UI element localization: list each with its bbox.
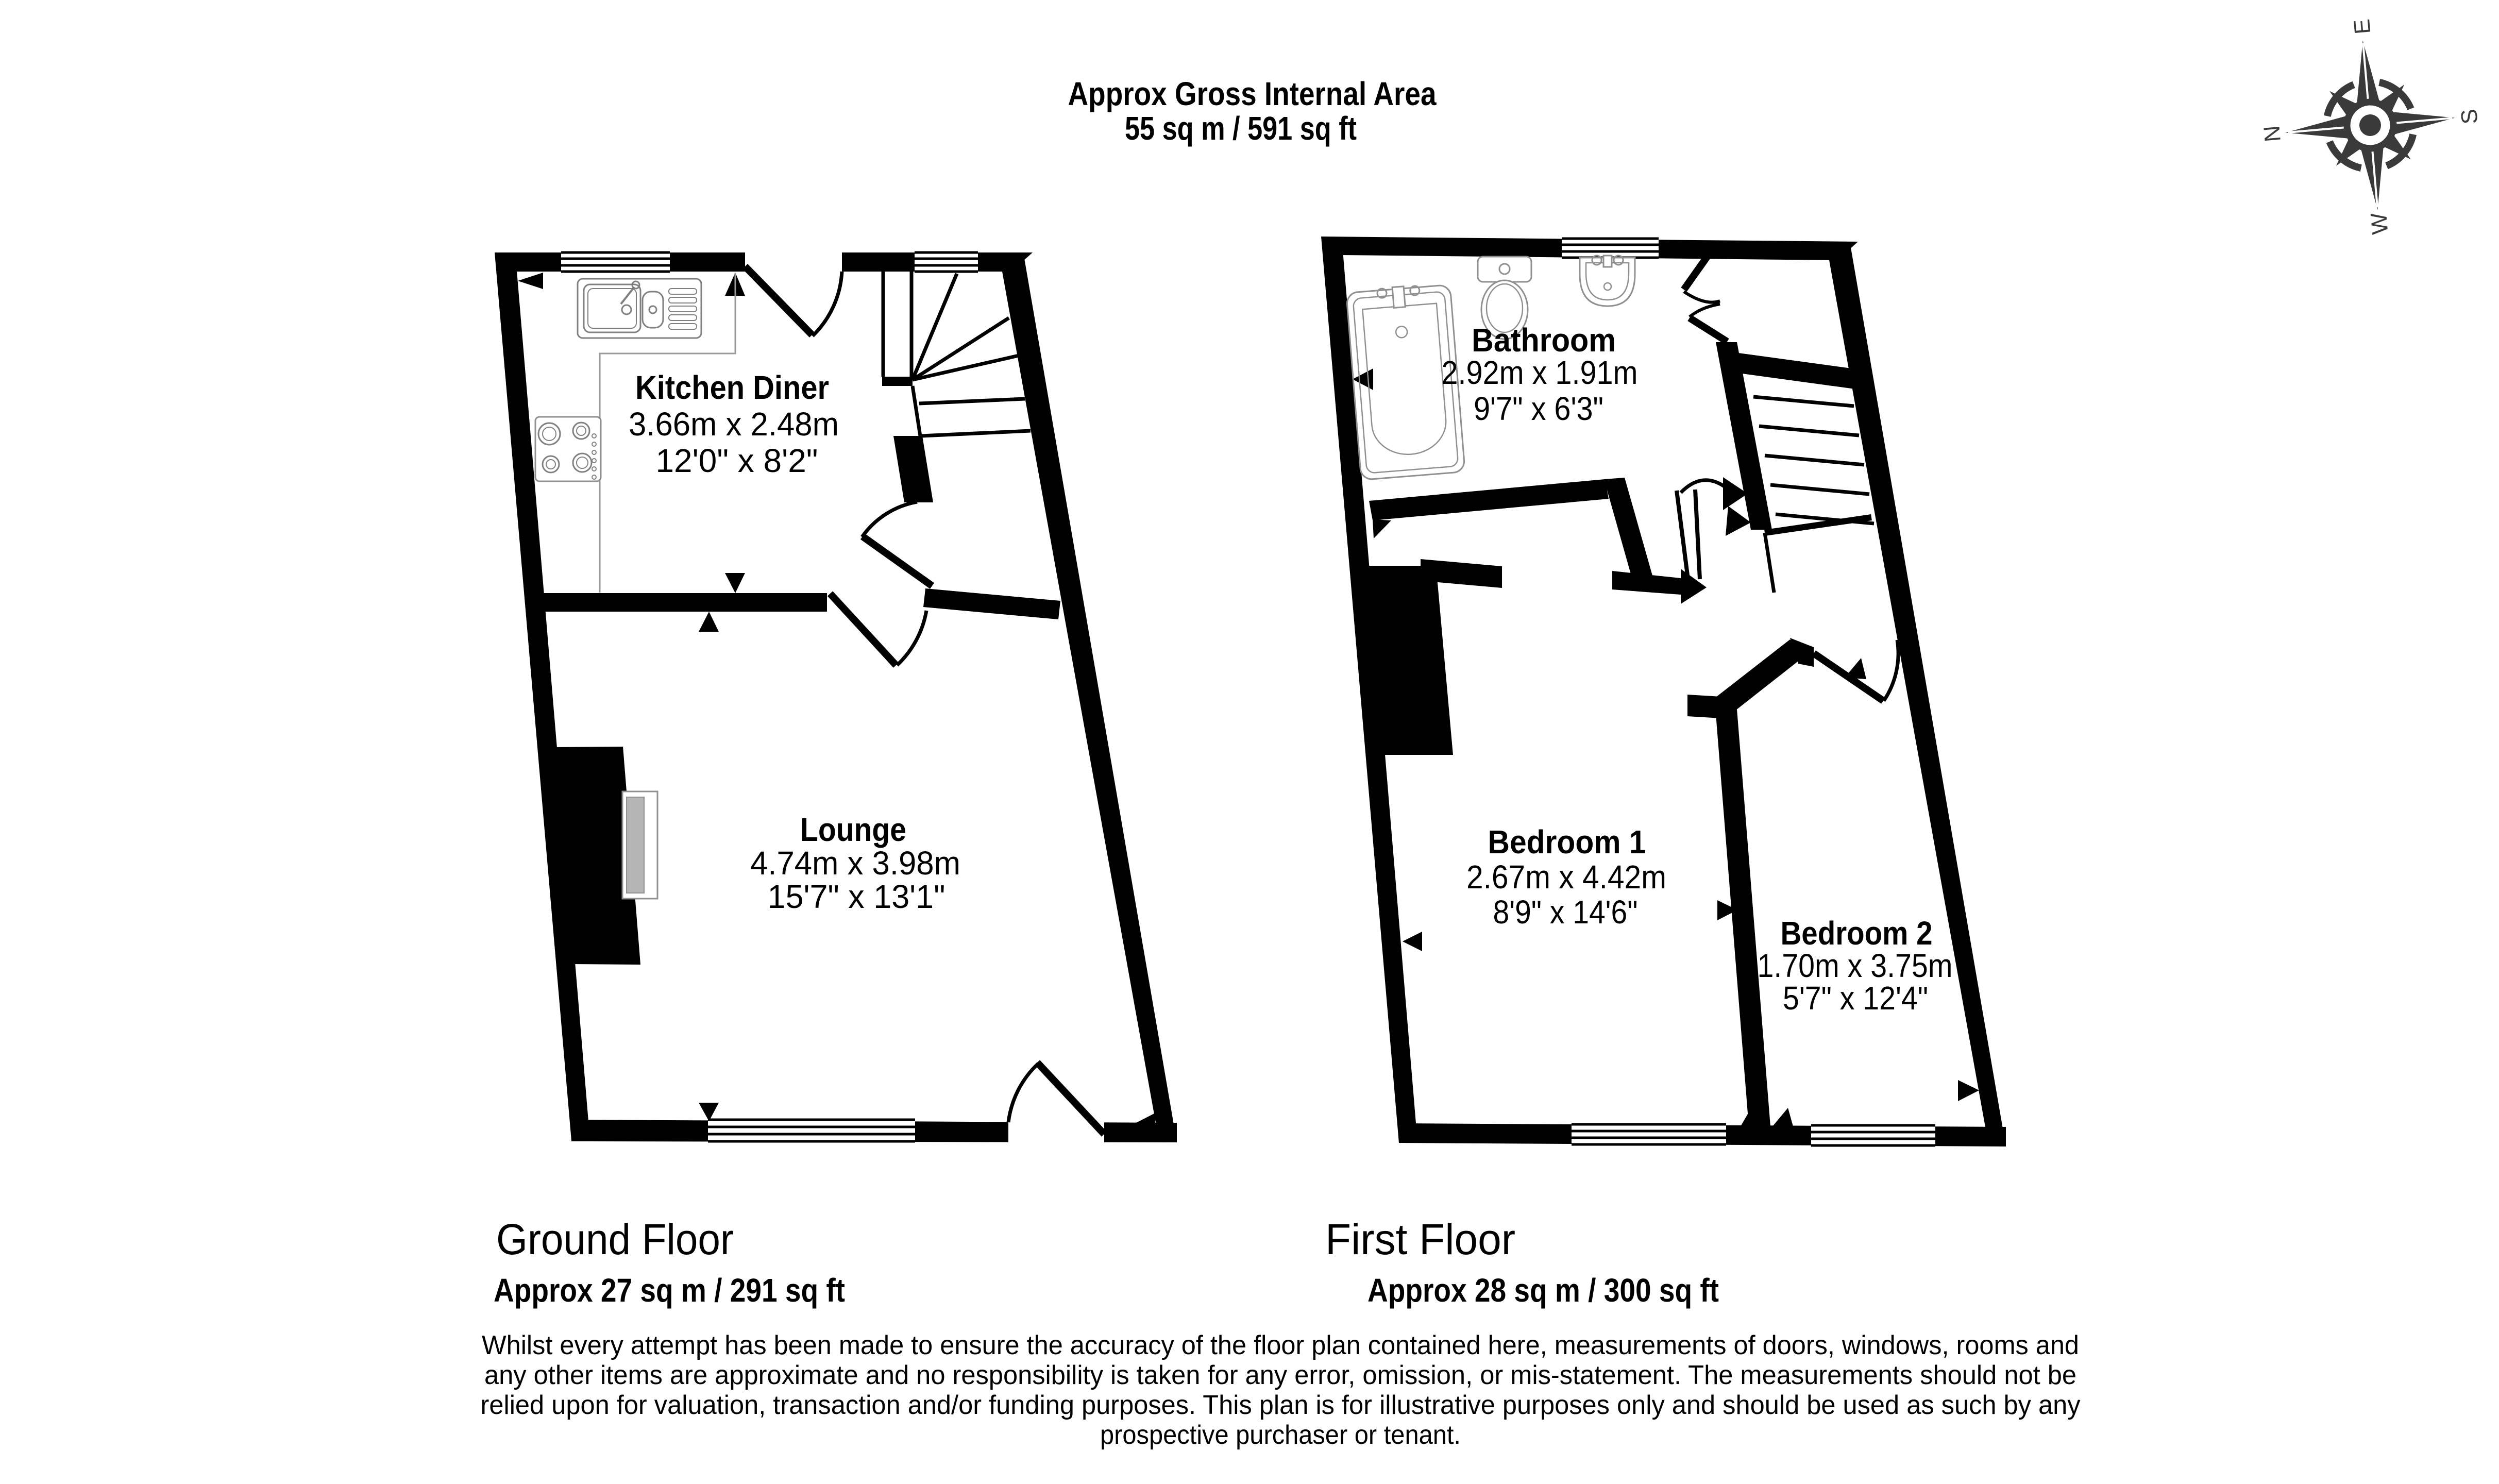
- svg-text:Bedroom 2: Bedroom 2: [1781, 915, 1933, 952]
- svg-text:Approx Gross Internal Area: Approx Gross Internal Area: [1068, 75, 1437, 112]
- svg-text:2.92m x 1.91m: 2.92m x 1.91m: [1442, 354, 1638, 391]
- svg-text:E: E: [2349, 18, 2375, 36]
- svg-text:Kitchen Diner: Kitchen Diner: [635, 369, 829, 406]
- svg-text:Approx 27 sq m / 291 sq ft: Approx 27 sq m / 291 sq ft: [494, 1272, 845, 1309]
- svg-text:Bathroom: Bathroom: [1472, 322, 1616, 359]
- svg-text:15'7" x 13'1": 15'7" x 13'1": [768, 878, 945, 915]
- svg-text:First Floor: First Floor: [1325, 1215, 1515, 1263]
- svg-text:5'7" x 12'4": 5'7" x 12'4": [1783, 980, 1928, 1017]
- svg-text:relied upon for valuation, tra: relied upon for valuation, transaction a…: [481, 1390, 2081, 1420]
- svg-text:2.67m x 4.42m: 2.67m x 4.42m: [1466, 858, 1666, 896]
- svg-text:Bedroom 1: Bedroom 1: [1488, 823, 1646, 861]
- svg-text:W: W: [2366, 212, 2393, 235]
- svg-text:12'0" x 8'2": 12'0" x 8'2": [656, 442, 818, 479]
- svg-text:Ground Floor: Ground Floor: [496, 1215, 734, 1263]
- svg-text:N: N: [2259, 125, 2286, 143]
- svg-text:Whilst every attempt has been: Whilst every attempt has been made to en…: [482, 1330, 2079, 1360]
- svg-text:Approx 28 sq m / 300 sq ft: Approx 28 sq m / 300 sq ft: [1367, 1272, 1719, 1309]
- svg-text:3.66m x 2.48m: 3.66m x 2.48m: [629, 406, 839, 443]
- svg-text:Lounge: Lounge: [800, 811, 906, 848]
- svg-text:4.74m x 3.98m: 4.74m x 3.98m: [750, 845, 960, 882]
- svg-text:1.70m x 3.75m: 1.70m x 3.75m: [1758, 947, 1953, 984]
- svg-text:55 sq m / 591 sq ft: 55 sq m / 591 sq ft: [1125, 110, 1357, 147]
- svg-text:9'7" x 6'3": 9'7" x 6'3": [1474, 390, 1603, 427]
- svg-text:prospective purchaser or tenan: prospective purchaser or tenant.: [1100, 1420, 1461, 1450]
- svg-text:any other items are approximat: any other items are approximate and no r…: [484, 1360, 2076, 1390]
- svg-text:8'9" x 14'6": 8'9" x 14'6": [1493, 893, 1638, 931]
- svg-text:S: S: [2456, 108, 2483, 125]
